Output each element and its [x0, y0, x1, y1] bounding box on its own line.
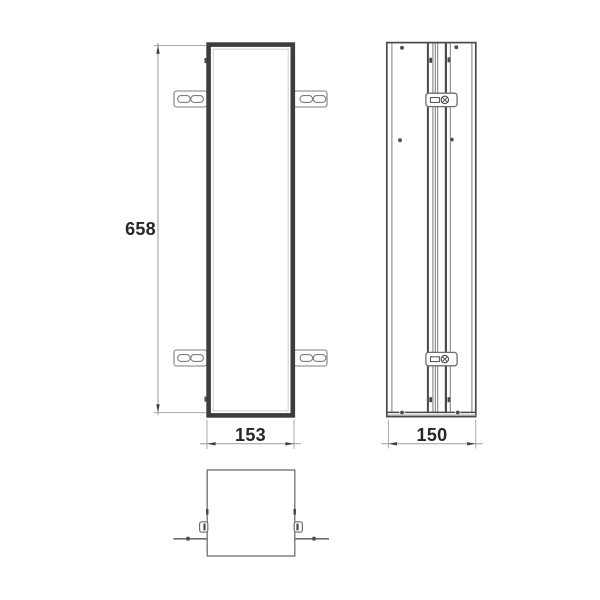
bracket-slot — [178, 355, 191, 362]
arrow-down-icon — [156, 404, 159, 413]
top-view-body — [207, 470, 295, 556]
rail-tick — [429, 58, 432, 63]
clip-bar — [203, 524, 205, 531]
height-dimension-label: 658 — [125, 219, 156, 239]
bracket-slot — [300, 96, 313, 103]
edge-tick — [294, 509, 297, 515]
wing-tick — [312, 537, 315, 541]
screw-head — [398, 138, 403, 143]
technical-drawing: 658 153 — [0, 0, 600, 600]
screw-head — [400, 46, 405, 51]
bracket-slot — [313, 96, 326, 103]
mounting-bracket-bottom-left — [174, 350, 207, 366]
arrow-left-icon — [207, 442, 215, 445]
bracket-slot — [300, 355, 313, 362]
side-clip-right — [294, 522, 302, 532]
arrow-up-icon — [156, 45, 159, 54]
front-frame-outline — [209, 45, 293, 416]
side-view — [387, 43, 476, 417]
screw-head — [454, 45, 459, 50]
mounting-bracket-top-left — [174, 91, 207, 107]
rail-tick — [448, 57, 451, 62]
anchor-clamp-bottom — [426, 352, 457, 365]
arrow-right-icon — [467, 442, 475, 445]
wing-tick — [186, 537, 189, 541]
rail-tick — [448, 397, 451, 402]
screw-head — [450, 137, 455, 142]
clip-bar — [296, 524, 298, 531]
edge-tick — [206, 509, 209, 515]
arrow-right-icon — [285, 442, 293, 445]
bracket-slot — [313, 355, 326, 362]
anchor-clamp-top — [426, 93, 457, 106]
screw-head — [456, 410, 461, 415]
drawing-canvas: 658 153 — [0, 0, 600, 600]
top-view — [174, 470, 330, 556]
mounting-bracket-top-right — [294, 91, 327, 107]
bracket-slot — [191, 96, 204, 103]
width-dimension-label: 153 — [235, 425, 266, 445]
depth-dimension-label: 150 — [417, 425, 448, 445]
arrow-left-icon — [389, 442, 397, 445]
width-dimension: 153 — [200, 420, 301, 450]
front-view — [174, 45, 327, 416]
frame-edge-tick — [205, 58, 207, 63]
rail-tick — [429, 397, 432, 402]
bracket-slot — [178, 96, 191, 103]
side-clip-left — [200, 522, 208, 532]
mounting-bracket-bottom-right — [294, 350, 327, 366]
depth-dimension: 150 — [382, 420, 483, 449]
frame-edge-tick — [205, 397, 207, 402]
screw-head — [400, 410, 405, 415]
bracket-slot — [191, 355, 204, 362]
